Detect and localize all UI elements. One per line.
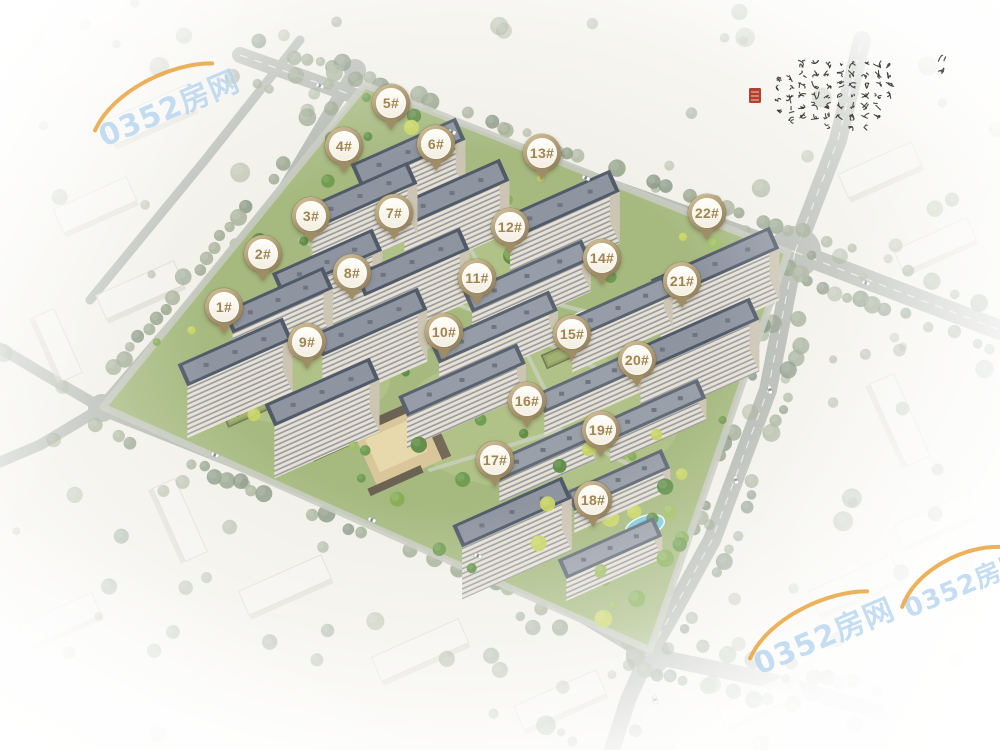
- marker-pin-tail: [470, 294, 484, 305]
- marker-label: 1#: [216, 300, 232, 314]
- marker-label: 20#: [625, 353, 649, 367]
- marker-circle: 18#: [574, 481, 612, 519]
- building-marker-8[interactable]: 8#: [333, 254, 371, 306]
- marker-pin-tail: [387, 229, 401, 240]
- marker-circle: 17#: [476, 441, 514, 479]
- building-marker-9[interactable]: 9#: [288, 323, 326, 375]
- marker-circle: 12#: [491, 208, 529, 246]
- building-marker-18[interactable]: 18#: [574, 481, 612, 533]
- marker-circle: 2#: [244, 235, 282, 273]
- marker-label: 16#: [515, 394, 539, 408]
- marker-circle: 11#: [458, 259, 496, 297]
- building-marker-1[interactable]: 1#: [205, 288, 243, 340]
- building-marker-5[interactable]: 5#: [372, 84, 410, 136]
- building-marker-13[interactable]: 13#: [523, 134, 561, 186]
- marker-pin-tail: [535, 169, 549, 180]
- marker-label: 3#: [303, 209, 319, 223]
- building-marker-16[interactable]: 16#: [508, 382, 546, 434]
- marker-pin-tail: [384, 119, 398, 130]
- aerial-site-plan: 0352房网0352房网0352房网 1#2#3#4#5#6#7#8#9#10#…: [0, 0, 1000, 750]
- marker-pin-tail: [594, 446, 608, 457]
- marker-circle: 20#: [618, 341, 656, 379]
- marker-label: 10#: [432, 325, 456, 339]
- marker-label: 19#: [589, 423, 613, 437]
- marker-label: 2#: [255, 247, 271, 261]
- marker-circle: 16#: [508, 382, 546, 420]
- building-marker-2[interactable]: 2#: [244, 235, 282, 287]
- marker-label: 17#: [483, 453, 507, 467]
- marker-pin-tail: [565, 350, 579, 361]
- marker-label: 4#: [336, 139, 352, 153]
- marker-label: 7#: [386, 206, 402, 220]
- building-marker-20[interactable]: 20#: [618, 341, 656, 393]
- marker-pin-tail: [337, 162, 351, 173]
- marker-label: 5#: [383, 96, 399, 110]
- marker-label: 11#: [465, 271, 489, 285]
- marker-circle: 1#: [205, 288, 243, 326]
- marker-pin-tail: [300, 358, 314, 369]
- building-marker-11[interactable]: 11#: [458, 259, 496, 311]
- marker-pin-tail: [304, 232, 318, 243]
- marker-pin-tail: [437, 348, 451, 359]
- marker-label: 18#: [581, 493, 605, 507]
- building-marker-14[interactable]: 14#: [583, 239, 621, 291]
- marker-circle: 7#: [375, 194, 413, 232]
- building-marker-19[interactable]: 19#: [582, 411, 620, 463]
- marker-pin-tail: [488, 476, 502, 487]
- building-marker-3[interactable]: 3#: [292, 197, 330, 249]
- marker-pin-tail: [503, 243, 517, 254]
- marker-circle: 13#: [523, 134, 561, 172]
- marker-pin-tail: [675, 297, 689, 308]
- marker-pin-tail: [429, 160, 443, 171]
- marker-pin-tail: [700, 229, 714, 240]
- building-marker-12[interactable]: 12#: [491, 208, 529, 260]
- marker-circle: 9#: [288, 323, 326, 361]
- marker-label: 14#: [590, 251, 614, 265]
- marker-circle: 19#: [582, 411, 620, 449]
- building-marker-15[interactable]: 15#: [553, 315, 591, 367]
- building-marker-22[interactable]: 22#: [688, 194, 726, 246]
- marker-label: 13#: [530, 146, 554, 160]
- marker-pin-tail: [256, 270, 270, 281]
- marker-pin-tail: [520, 417, 534, 428]
- marker-circle: 5#: [372, 84, 410, 122]
- marker-label: 8#: [344, 266, 360, 280]
- marker-circle: 10#: [425, 313, 463, 351]
- marker-label: 15#: [560, 327, 584, 341]
- marker-circle: 6#: [417, 125, 455, 163]
- building-marker-4[interactable]: 4#: [325, 127, 363, 179]
- marker-pin-tail: [595, 274, 609, 285]
- marker-label: 22#: [695, 206, 719, 220]
- site-plan-rendering: [0, 0, 1000, 750]
- marker-label: 12#: [498, 220, 522, 234]
- marker-circle: 14#: [583, 239, 621, 277]
- marker-pin-tail: [345, 289, 359, 300]
- marker-circle: 4#: [325, 127, 363, 165]
- building-marker-21[interactable]: 21#: [663, 262, 701, 314]
- marker-circle: 8#: [333, 254, 371, 292]
- marker-circle: 21#: [663, 262, 701, 300]
- marker-circle: 15#: [553, 315, 591, 353]
- building-marker-17[interactable]: 17#: [476, 441, 514, 493]
- marker-circle: 22#: [688, 194, 726, 232]
- building-marker-6[interactable]: 6#: [417, 125, 455, 177]
- marker-label: 21#: [670, 274, 694, 288]
- marker-circle: 3#: [292, 197, 330, 235]
- marker-pin-tail: [630, 376, 644, 387]
- marker-pin-tail: [586, 516, 600, 527]
- building-marker-10[interactable]: 10#: [425, 313, 463, 365]
- building-marker-7[interactable]: 7#: [375, 194, 413, 246]
- marker-label: 6#: [428, 137, 444, 151]
- marker-label: 9#: [299, 335, 315, 349]
- marker-pin-tail: [217, 323, 231, 334]
